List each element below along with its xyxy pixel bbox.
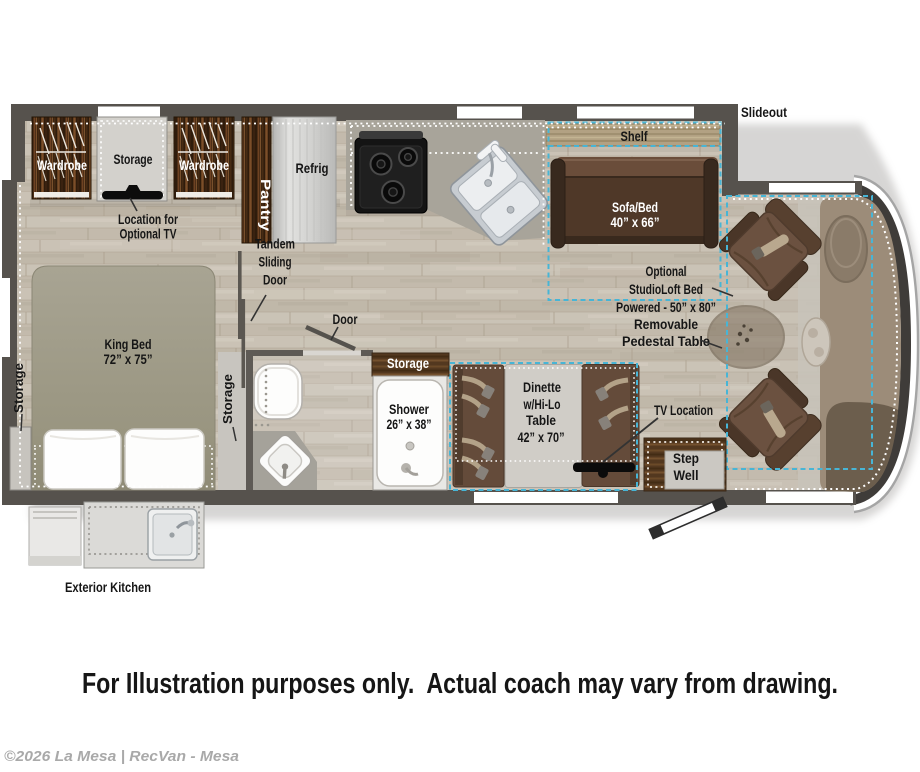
svg-text:Table: Table <box>526 412 556 428</box>
svg-text:Pantry: Pantry <box>258 179 273 232</box>
svg-text:For Illustration purposes only: For Illustration purposes only. Actual c… <box>82 668 838 700</box>
svg-text:Pedestal Table: Pedestal Table <box>622 334 710 349</box>
svg-text:Location for: Location for <box>118 212 179 227</box>
svg-text:Wardrobe: Wardrobe <box>37 157 87 173</box>
svg-text:Wardrobe: Wardrobe <box>179 157 229 173</box>
svg-text:w/Hi-Lo: w/Hi-Lo <box>523 396 561 412</box>
svg-text:72” x 75”: 72” x 75” <box>104 351 153 367</box>
svg-text:Refrig: Refrig <box>296 160 329 176</box>
svg-text:Tandem: Tandem <box>255 237 295 252</box>
svg-text:42” x 70”: 42” x 70” <box>518 429 565 445</box>
svg-text:Storage: Storage <box>387 356 429 371</box>
svg-text:Storage: Storage <box>114 151 153 167</box>
svg-text:Well: Well <box>674 468 699 483</box>
svg-text:Storage: Storage <box>11 363 26 413</box>
svg-text:40” x 66”: 40” x 66” <box>611 214 660 230</box>
svg-text:Removable: Removable <box>634 317 698 332</box>
svg-text:TV Location: TV Location <box>654 403 713 418</box>
svg-text:©2026 La Mesa | RecVan - Mesa: ©2026 La Mesa | RecVan - Mesa <box>4 748 239 765</box>
svg-text:Sliding: Sliding <box>259 255 292 270</box>
svg-text:Optional: Optional <box>646 264 687 279</box>
svg-text:Shower: Shower <box>389 402 430 417</box>
svg-text:Door: Door <box>263 273 288 288</box>
svg-text:Step: Step <box>673 451 699 466</box>
svg-text:StudioLoft Bed: StudioLoft Bed <box>629 282 703 297</box>
svg-text:Door: Door <box>333 312 359 327</box>
svg-text:Powered - 50” x 80”: Powered - 50” x 80” <box>616 300 716 315</box>
svg-text:Storage: Storage <box>220 374 235 424</box>
svg-text:Optional TV: Optional TV <box>120 227 177 242</box>
svg-text:Dinette: Dinette <box>523 379 561 395</box>
svg-text:Shelf: Shelf <box>621 129 648 144</box>
svg-text:Exterior Kitchen: Exterior Kitchen <box>65 579 151 595</box>
svg-text:Sofa/Bed: Sofa/Bed <box>612 199 658 215</box>
svg-text:Slideout: Slideout <box>741 105 787 120</box>
svg-text:26” x 38”: 26” x 38” <box>387 417 432 432</box>
svg-text:King Bed: King Bed <box>105 336 152 352</box>
